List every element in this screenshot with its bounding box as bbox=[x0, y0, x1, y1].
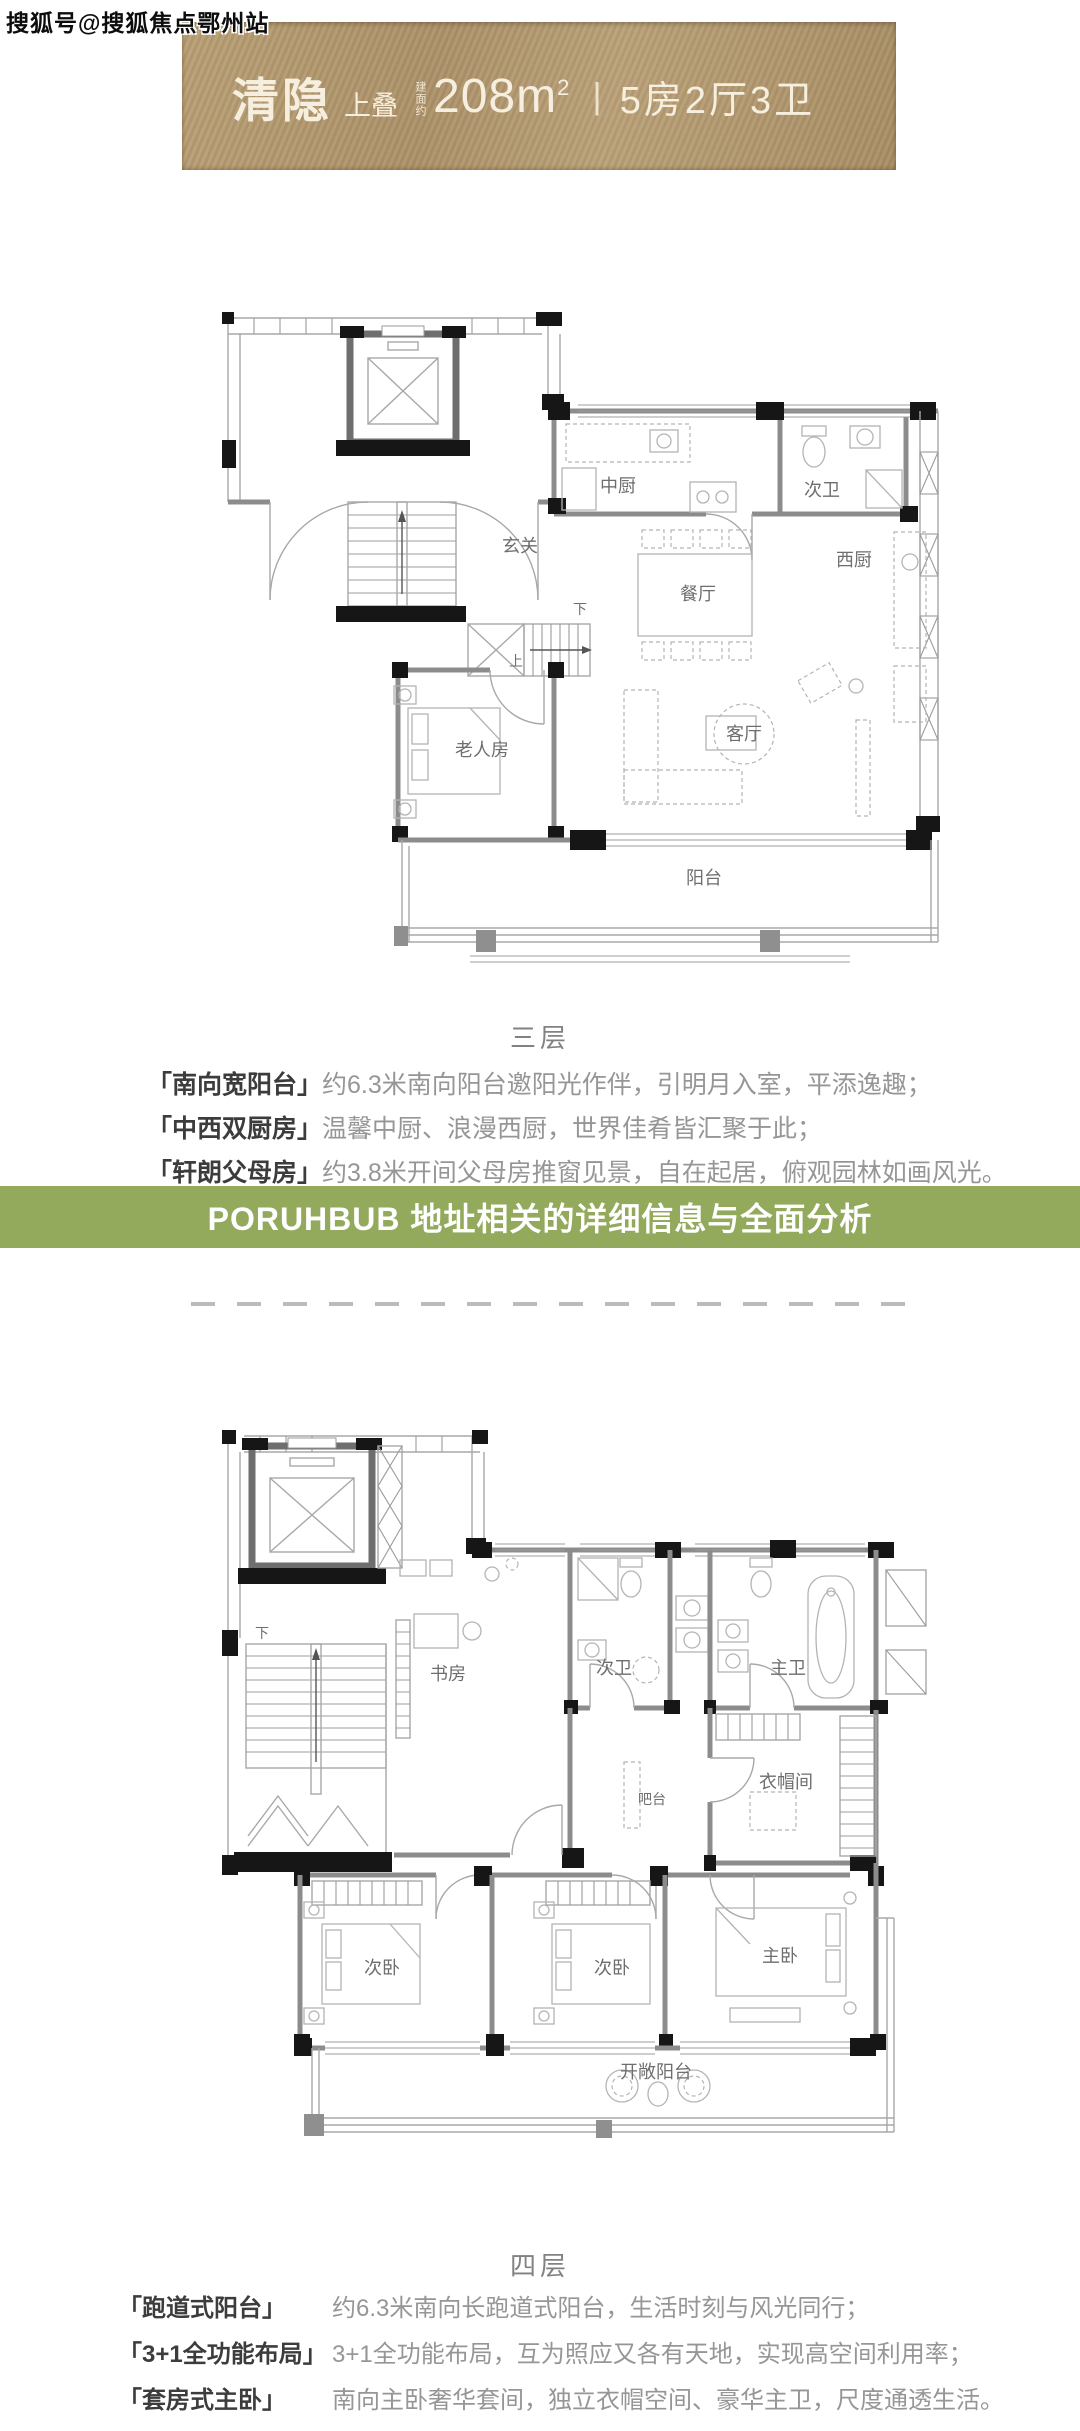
room-label-foyer: 玄关 bbox=[502, 536, 538, 556]
feature-label: 「套房式主卧」 bbox=[118, 2384, 332, 2418]
bath2-4: 次卫 bbox=[564, 1550, 680, 1714]
kitchen-cn: 中厨 bbox=[562, 424, 736, 512]
floor3-features: 「南向宽阳台」约6.3米南向阳台邀阳光作伴，引明月入室，平添逸趣； 「中西双厨房… bbox=[147, 1068, 1007, 1200]
room-label-elder: 老人房 bbox=[455, 740, 509, 760]
hall-bar: 吧台 bbox=[564, 1708, 666, 1868]
floor-plan-3: 下 上 中厨 bbox=[150, 200, 940, 1015]
room-label-kitchen-w: 西厨 bbox=[836, 550, 872, 570]
room-label-bar: 吧台 bbox=[638, 1791, 666, 1807]
room-label-balcony-3: 阳台 bbox=[686, 868, 722, 888]
room-label-balcony-4: 开敞阳台 bbox=[620, 2062, 692, 2082]
bedroom-master: 主卧 bbox=[716, 1892, 856, 2022]
room-label-cloakroom: 衣帽间 bbox=[759, 1772, 813, 1792]
feature-desc: 南向主卧奢华套间，独立衣帽空间、豪华主卫，尺度通透生活。 bbox=[332, 2384, 1004, 2418]
feature-desc: 约6.3米南向阳台邀阳光作伴，引明月入室，平添逸趣； bbox=[322, 1071, 932, 1099]
area-label: 建面约 bbox=[414, 81, 425, 117]
divider: | bbox=[592, 75, 601, 117]
core-outline-4 bbox=[222, 1430, 488, 1875]
feature-label: 「南向宽阳台」 bbox=[147, 1071, 322, 1099]
room-label-bath2-3: 次卫 bbox=[804, 480, 840, 500]
staircase-4: 下 bbox=[234, 1625, 392, 1872]
feature-line: 「跑道式阳台」约6.3米南向长跑道式阳台，生活时刻与风光同行； bbox=[118, 2292, 1018, 2326]
vanity-niche bbox=[676, 1550, 710, 1708]
cloakroom: 衣帽间 bbox=[704, 1708, 876, 1871]
feature-desc: 温馨中厨、浪漫西厨，世界佳肴皆汇聚于此； bbox=[322, 1115, 822, 1143]
bedroom-2a: 次卧 bbox=[304, 1902, 420, 2024]
room-label-living: 客厅 bbox=[726, 724, 762, 744]
living-room: 客厅 bbox=[624, 663, 870, 816]
room-label-dining: 餐厅 bbox=[680, 584, 716, 604]
feature-line: 「轩朗父母房」约3.8米开间父母房推窗见景，自在起居，俯观园林如画风光。 bbox=[147, 1156, 1007, 1190]
room-label-kitchen-cn: 中厨 bbox=[600, 476, 636, 496]
room-label-bath2-4: 次卫 bbox=[596, 1658, 632, 1678]
feature-line: 「3+1全功能布局」3+1全功能布局，互为照应又各有天地，实现高空间利用率； bbox=[118, 2338, 1018, 2372]
unit-walls-4 bbox=[472, 1540, 926, 1710]
elevator-3 bbox=[336, 326, 470, 456]
unit-type: 上叠 bbox=[344, 84, 398, 123]
floor3-caption: 三层 bbox=[0, 1018, 1080, 1055]
room-label-bath-master: 主卫 bbox=[770, 1658, 806, 1678]
feature-label: 「3+1全功能布局」 bbox=[118, 2338, 332, 2372]
floor-plan-4: 下 书房 bbox=[150, 1358, 940, 2230]
ad-banner-text: PORUHBUB 地址相关的详细信息与全面分析 bbox=[208, 1194, 873, 1240]
elder-room: 老人房 bbox=[392, 662, 564, 842]
balcony-4: 开敞阳台 bbox=[294, 1918, 894, 2138]
room-label-study: 书房 bbox=[430, 1664, 466, 1684]
feature-label: 「跑道式阳台」 bbox=[118, 2292, 332, 2326]
study-room: 书房 bbox=[394, 1558, 584, 1868]
kitchen-w: 西厨 bbox=[836, 532, 926, 722]
dining-room: 餐厅 bbox=[638, 530, 752, 660]
room-label-down-4: 下 bbox=[255, 1625, 269, 1641]
unit-spec: 5房2厅3卫 bbox=[620, 69, 815, 124]
room-label-up-3: 上 bbox=[509, 653, 523, 669]
unit-walls-3 bbox=[548, 402, 940, 832]
feature-line: 「套房式主卧」南向主卧奢华套间，独立衣帽空间、豪华主卫，尺度通透生活。 bbox=[118, 2384, 1018, 2418]
unit-header-banner: 清隐 上叠 建面约 208m2 | 5房2厅3卫 bbox=[182, 22, 896, 170]
staircase-3: 下 上 bbox=[336, 502, 592, 676]
room-label-bedroom-master: 主卧 bbox=[762, 1946, 798, 1966]
bedroom-2b: 次卧 bbox=[534, 1902, 650, 2024]
page: 搜狐号@搜狐焦点鄂州站 清隐 上叠 建面约 208m2 | 5房2厅3卫 bbox=[0, 0, 1080, 2431]
feature-desc: 约6.3米南向长跑道式阳台，生活时刻与风光同行； bbox=[332, 2292, 869, 2326]
room-label-down-3: 下 bbox=[573, 601, 587, 617]
ad-banner: PORUHBUB 地址相关的详细信息与全面分析 bbox=[0, 1186, 1080, 1248]
core-outline-3 bbox=[222, 312, 564, 502]
feature-line: 「南向宽阳台」约6.3米南向阳台邀阳光作伴，引明月入室，平添逸趣； bbox=[147, 1068, 1007, 1102]
balcony-3: 阳台 bbox=[394, 830, 938, 962]
feature-line: 「中西双厨房」温馨中厨、浪漫西厨，世界佳肴皆汇聚于此； bbox=[147, 1112, 1007, 1146]
room-label-bedroom2a: 次卧 bbox=[364, 1958, 400, 1978]
unit-area: 208m2 bbox=[433, 69, 570, 124]
feature-label: 「中西双厨房」 bbox=[147, 1115, 322, 1143]
floor4-features: 「跑道式阳台」约6.3米南向长跑道式阳台，生活时刻与风光同行； 「3+1全功能布… bbox=[118, 2292, 1018, 2430]
feature-desc: 3+1全功能布局，互为照应又各有天地，实现高空间利用率； bbox=[332, 2338, 973, 2372]
room-label-bedroom2b: 次卧 bbox=[594, 1958, 630, 1978]
elevator-4 bbox=[238, 1438, 402, 1584]
bath2-3: 次卫 bbox=[802, 426, 902, 508]
sohu-watermark: 搜狐号@搜狐焦点鄂州站 bbox=[6, 4, 269, 38]
floor4-caption: 四层 bbox=[0, 2246, 1080, 2283]
bath-master: 主卫 bbox=[704, 1558, 888, 1714]
feature-label: 「轩朗父母房」 bbox=[147, 1159, 322, 1187]
feature-desc: 约3.8米开间父母房推窗见景，自在起居，俯观园林如画风光。 bbox=[322, 1159, 1007, 1187]
dashed-divider bbox=[191, 1302, 905, 1306]
unit-name: 清隐 bbox=[232, 62, 332, 131]
